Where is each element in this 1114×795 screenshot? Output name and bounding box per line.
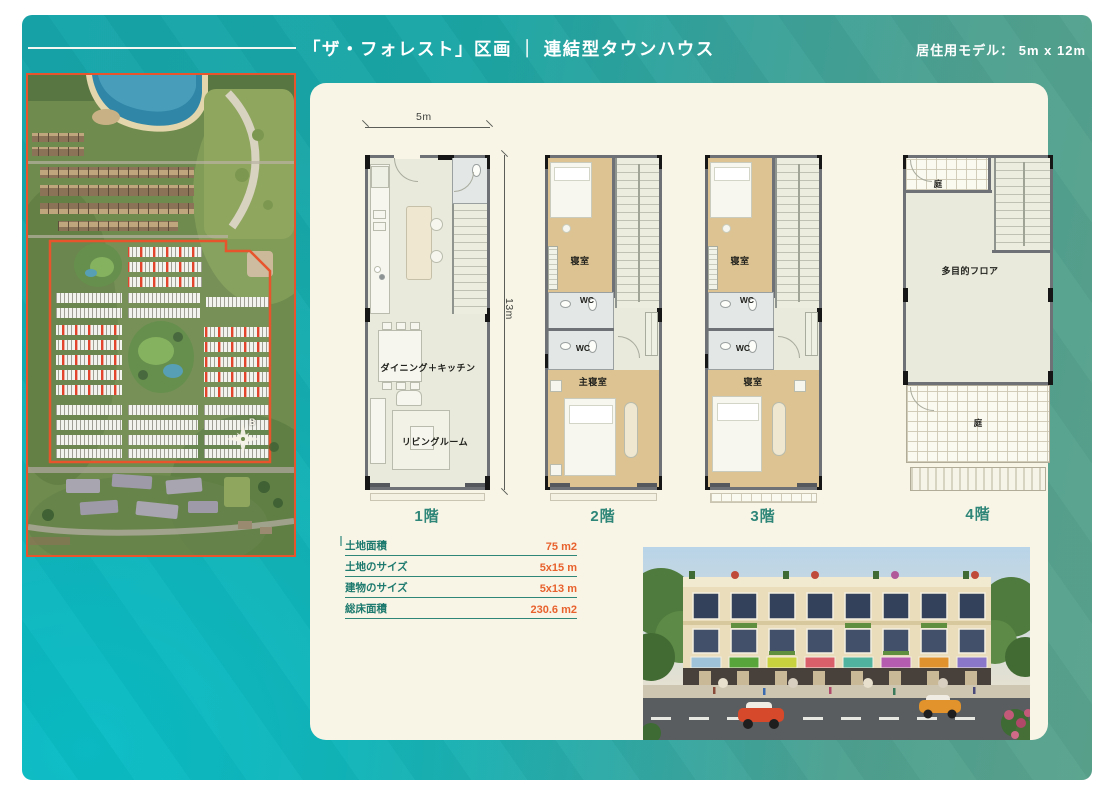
spec-row-land-size: 土地のサイズ 5x15 m (345, 556, 577, 577)
plan2-stairs (615, 158, 659, 308)
exterior-render (643, 547, 1030, 740)
spec-row-total-floor-area: 総床面積 230.6 m2 (345, 598, 577, 619)
plan3-floor-label: 3階 (750, 505, 775, 526)
compass-north-label: B (249, 417, 256, 427)
slide-page: 「ザ・フォレスト」区画 ｜ 連結型タウンハウス 居住用モデル： 5m x 12m (0, 0, 1114, 795)
room-label-multipurpose: 多目的フロア (941, 264, 998, 277)
kitchen-island (406, 206, 432, 280)
room-label-wc1-2f: WC (580, 295, 594, 305)
spec-value: 75 m2 (546, 541, 577, 555)
plan3-terrace (710, 493, 817, 503)
spec-label: 建物のサイズ (345, 580, 408, 597)
map-lake (86, 75, 208, 132)
spec-value: 5x15 m (540, 562, 577, 576)
entry-door-arc (394, 158, 418, 182)
dim-line-13m (504, 155, 505, 490)
room-label-master: 主寝室 (579, 375, 608, 388)
plan4-louver-deck (910, 467, 1046, 491)
plan3-stairs (775, 158, 819, 308)
room-label-dining-kitchen: ダイニング＋キッチン (380, 361, 475, 374)
dining-table (378, 330, 422, 382)
district-boundary-outline (50, 241, 270, 462)
plan2-door-arc (618, 336, 640, 358)
room-label-bedroom3f-bottom: 寝室 (743, 375, 762, 388)
spec-label: 土地のサイズ (345, 559, 408, 576)
plan1-floor-label: 1階 (414, 505, 439, 526)
sofa (370, 398, 386, 464)
plan1-stairs (452, 204, 487, 314)
room-label-wc2-2f: WC (576, 343, 590, 353)
room-label-wc2-3f: WC (736, 343, 750, 353)
exterior-render-illustration (643, 547, 1030, 740)
render-road (643, 695, 1030, 740)
site-map: B (26, 73, 296, 557)
room-label-garden-top: 庭 (934, 178, 943, 190)
dim-line-5m (365, 127, 490, 128)
room-label-living: リビングルーム (402, 435, 468, 448)
room-label-wc1-3f: WC (740, 295, 754, 305)
page-title: 「ザ・フォレスト」区画 ｜ 連結型タウンハウス (303, 36, 715, 61)
plan3-outline (705, 155, 822, 490)
plan3-bed-top (710, 162, 752, 218)
header-divider-line (28, 47, 296, 49)
plan4-floor-label: 4階 (965, 503, 990, 524)
plan2-master-bed (564, 398, 616, 476)
plan1-porch (370, 493, 485, 501)
plan2-balcony (550, 493, 657, 501)
plan3-balcony-slats (805, 312, 818, 356)
dim-label-13m: 13m (503, 298, 515, 320)
plan2-floor-label: 2階 (590, 505, 615, 526)
plan3-door-arc (778, 336, 800, 358)
content-panel: 5m 13m (310, 83, 1048, 740)
model-size-label: 居住用モデル： 5m x 12m (916, 40, 1086, 59)
plan4-stairs (994, 158, 1050, 250)
plan3-bed-bottom (712, 396, 762, 472)
spec-value: 5x13 m (540, 583, 577, 597)
spec-row-land-area: 土地面積 75 m2 (345, 535, 577, 556)
spec-row-building-size: 建物のサイズ 5x13 m (345, 577, 577, 598)
plan2-bed (550, 162, 592, 218)
spec-label: 総床面積 (345, 601, 387, 618)
room-label-bedroom3f-top: 寝室 (730, 254, 749, 267)
plan2-balcony-slats (645, 312, 658, 356)
site-map-illustration (28, 75, 294, 555)
spec-value: 230.6 m2 (531, 604, 577, 618)
spec-label: 土地面積 (345, 538, 387, 555)
dim-label-5m: 5m (416, 111, 432, 123)
room-label-garden-bottom: 庭 (974, 417, 983, 429)
room-label-bedroom2f: 寝室 (570, 254, 589, 267)
spec-table: 土地面積 75 m2 土地のサイズ 5x15 m 建物のサイズ 5x13 m 総… (345, 535, 577, 619)
render-building (683, 571, 991, 685)
plan2-outline (545, 155, 662, 490)
